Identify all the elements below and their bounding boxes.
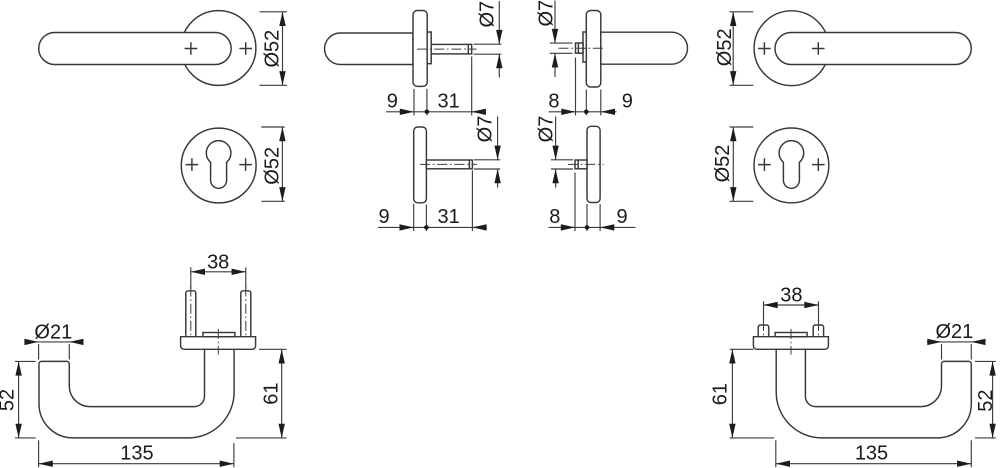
svg-text:38: 38: [780, 284, 802, 306]
svg-text:31: 31: [437, 206, 459, 228]
svg-text:135: 135: [855, 443, 888, 465]
svg-text:Ø7: Ø7: [474, 116, 496, 143]
svg-text:52: 52: [0, 389, 19, 411]
svg-text:Ø7: Ø7: [535, 0, 557, 27]
svg-text:Ø7: Ø7: [477, 1, 499, 28]
svg-text:8: 8: [548, 91, 559, 113]
svg-text:Ø52: Ø52: [712, 145, 734, 183]
svg-text:Ø52: Ø52: [261, 30, 283, 68]
svg-text:52: 52: [975, 389, 997, 411]
svg-text:31: 31: [437, 91, 459, 113]
svg-text:61: 61: [710, 383, 732, 405]
svg-text:61: 61: [261, 382, 283, 404]
svg-text:9: 9: [387, 91, 398, 113]
svg-text:9: 9: [622, 91, 633, 113]
svg-text:8: 8: [549, 206, 560, 228]
svg-text:9: 9: [616, 206, 627, 228]
svg-text:Ø7: Ø7: [536, 116, 558, 143]
svg-text:38: 38: [207, 251, 229, 273]
svg-text:135: 135: [120, 443, 153, 465]
svg-text:Ø21: Ø21: [34, 321, 72, 343]
svg-text:9: 9: [378, 206, 389, 228]
svg-text:Ø52: Ø52: [714, 28, 736, 66]
svg-text:Ø52: Ø52: [261, 147, 283, 185]
svg-text:Ø21: Ø21: [935, 321, 973, 343]
